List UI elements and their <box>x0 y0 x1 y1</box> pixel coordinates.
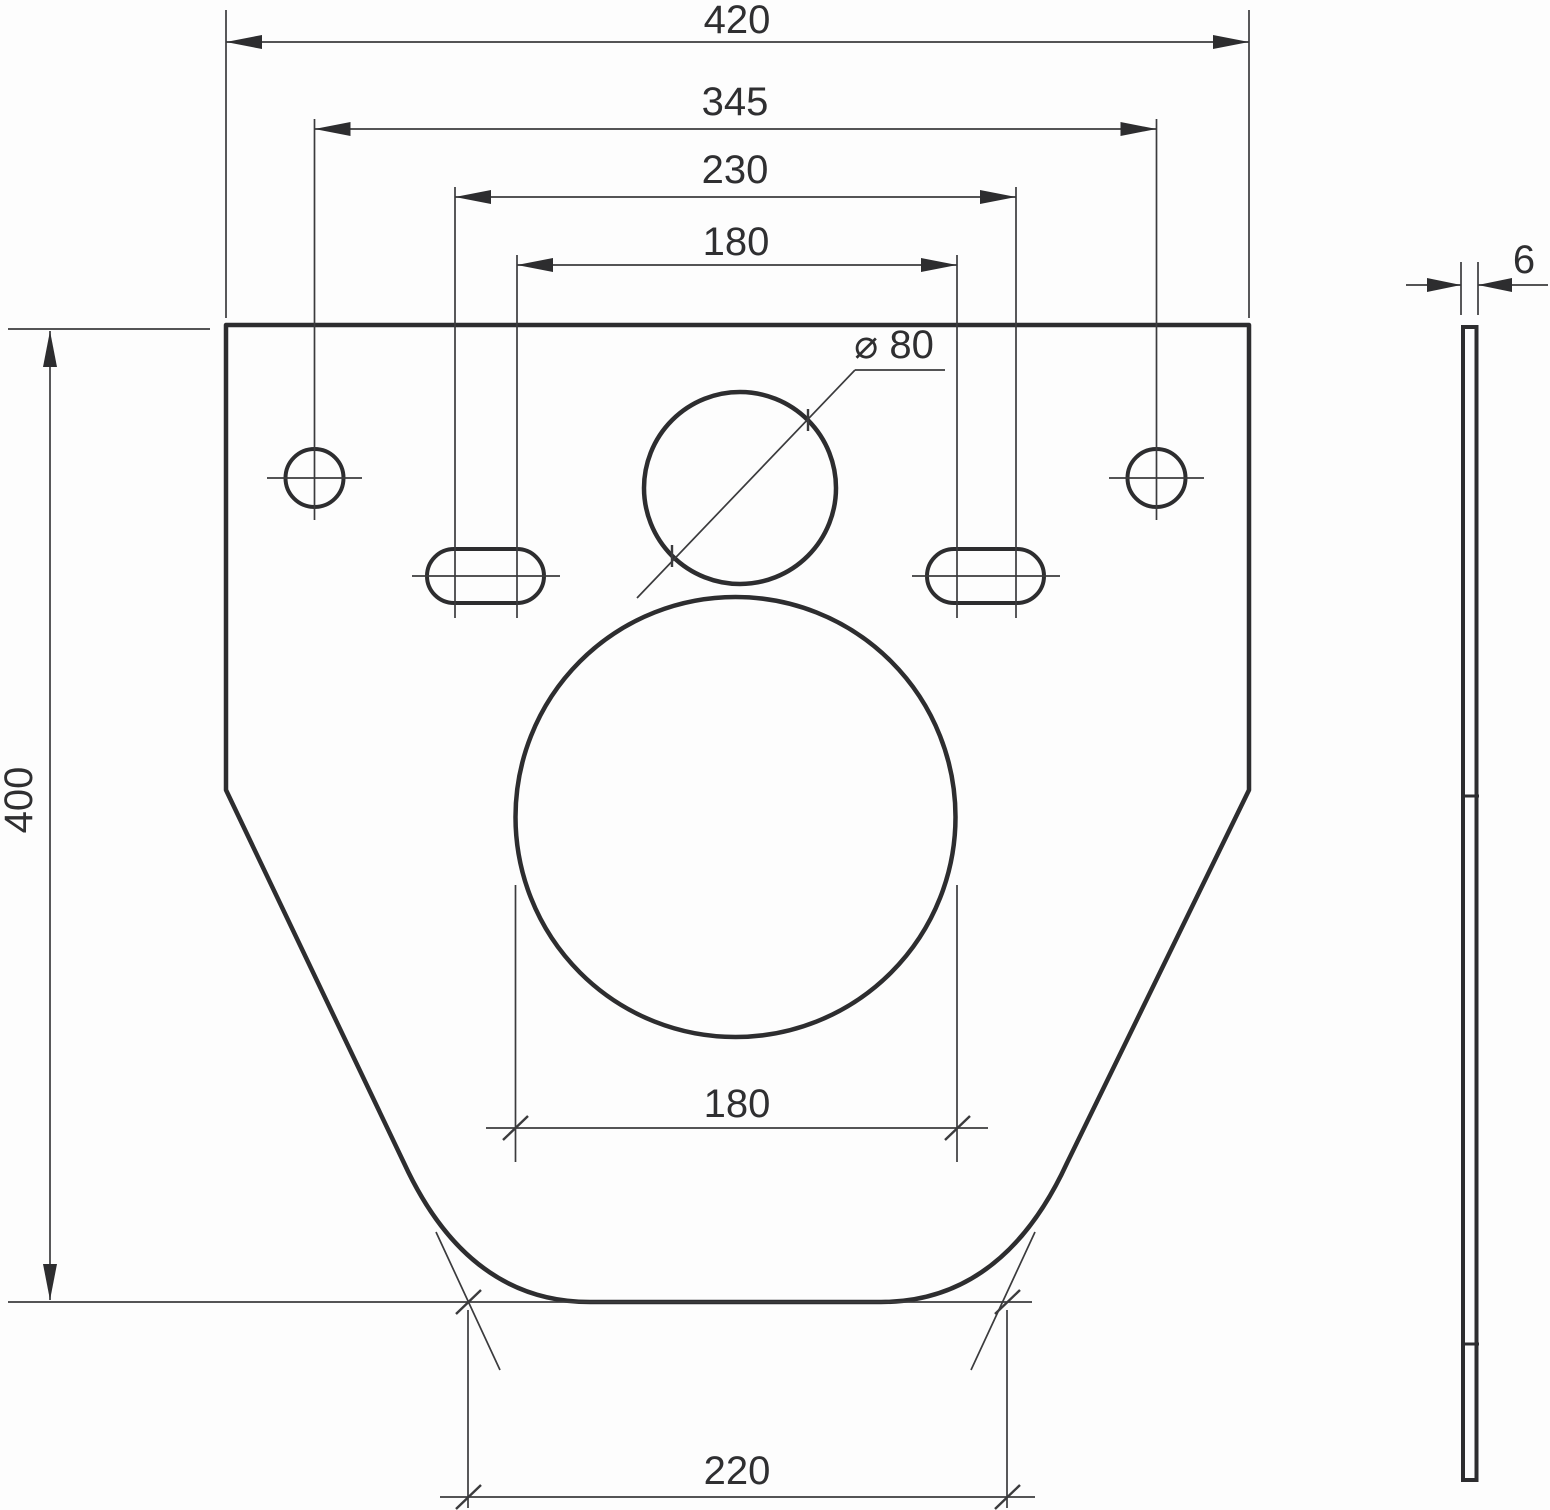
dim-label-180-bottom: 180 <box>704 1082 771 1126</box>
dim-dia-80: ⌀ 80 <box>637 323 945 598</box>
side-view-strip <box>1463 327 1477 1480</box>
technical-drawing-canvas: 420 345 230 180 <box>0 0 1550 1510</box>
dim-label-400: 400 <box>0 767 41 834</box>
dim-345: 345 <box>315 80 1157 520</box>
dim-180-top: 180 <box>517 220 957 618</box>
arrowhead-right <box>980 190 1016 204</box>
arrowhead-up <box>43 331 57 367</box>
dim-6: 6 <box>1406 238 1548 315</box>
arrowhead-right <box>1121 122 1157 136</box>
dim-230: 230 <box>455 148 1016 618</box>
dim-label-180-top: 180 <box>703 220 770 264</box>
arrowhead-right <box>1213 35 1249 49</box>
hole-dia-180 <box>516 597 956 1037</box>
arrowhead-inward-left <box>1427 278 1461 292</box>
arrowhead-left <box>517 258 553 272</box>
dim-180-bottom: 180 <box>486 885 988 1162</box>
arrowhead-inward-right <box>1478 278 1512 292</box>
arrowhead-left <box>315 122 351 136</box>
dim-label-230: 230 <box>702 148 769 192</box>
dim-label-6: 6 <box>1513 238 1535 282</box>
dim-label-220: 220 <box>704 1449 771 1493</box>
arrowhead-down <box>43 1264 57 1300</box>
dim-label-420: 420 <box>704 0 771 42</box>
plate-outline <box>226 325 1249 1302</box>
dim-label-345: 345 <box>702 80 769 124</box>
arrowhead-left <box>226 35 262 49</box>
drawing-page: 420 345 230 180 <box>0 0 1550 1510</box>
dim-220: 220 <box>436 1232 1035 1509</box>
arrowhead-right <box>921 258 957 272</box>
leader-diagonal <box>637 370 855 598</box>
dim-label-dia-80: ⌀ 80 <box>854 323 934 367</box>
hole-centerlines <box>267 478 1204 576</box>
arrowhead-left <box>455 190 491 204</box>
